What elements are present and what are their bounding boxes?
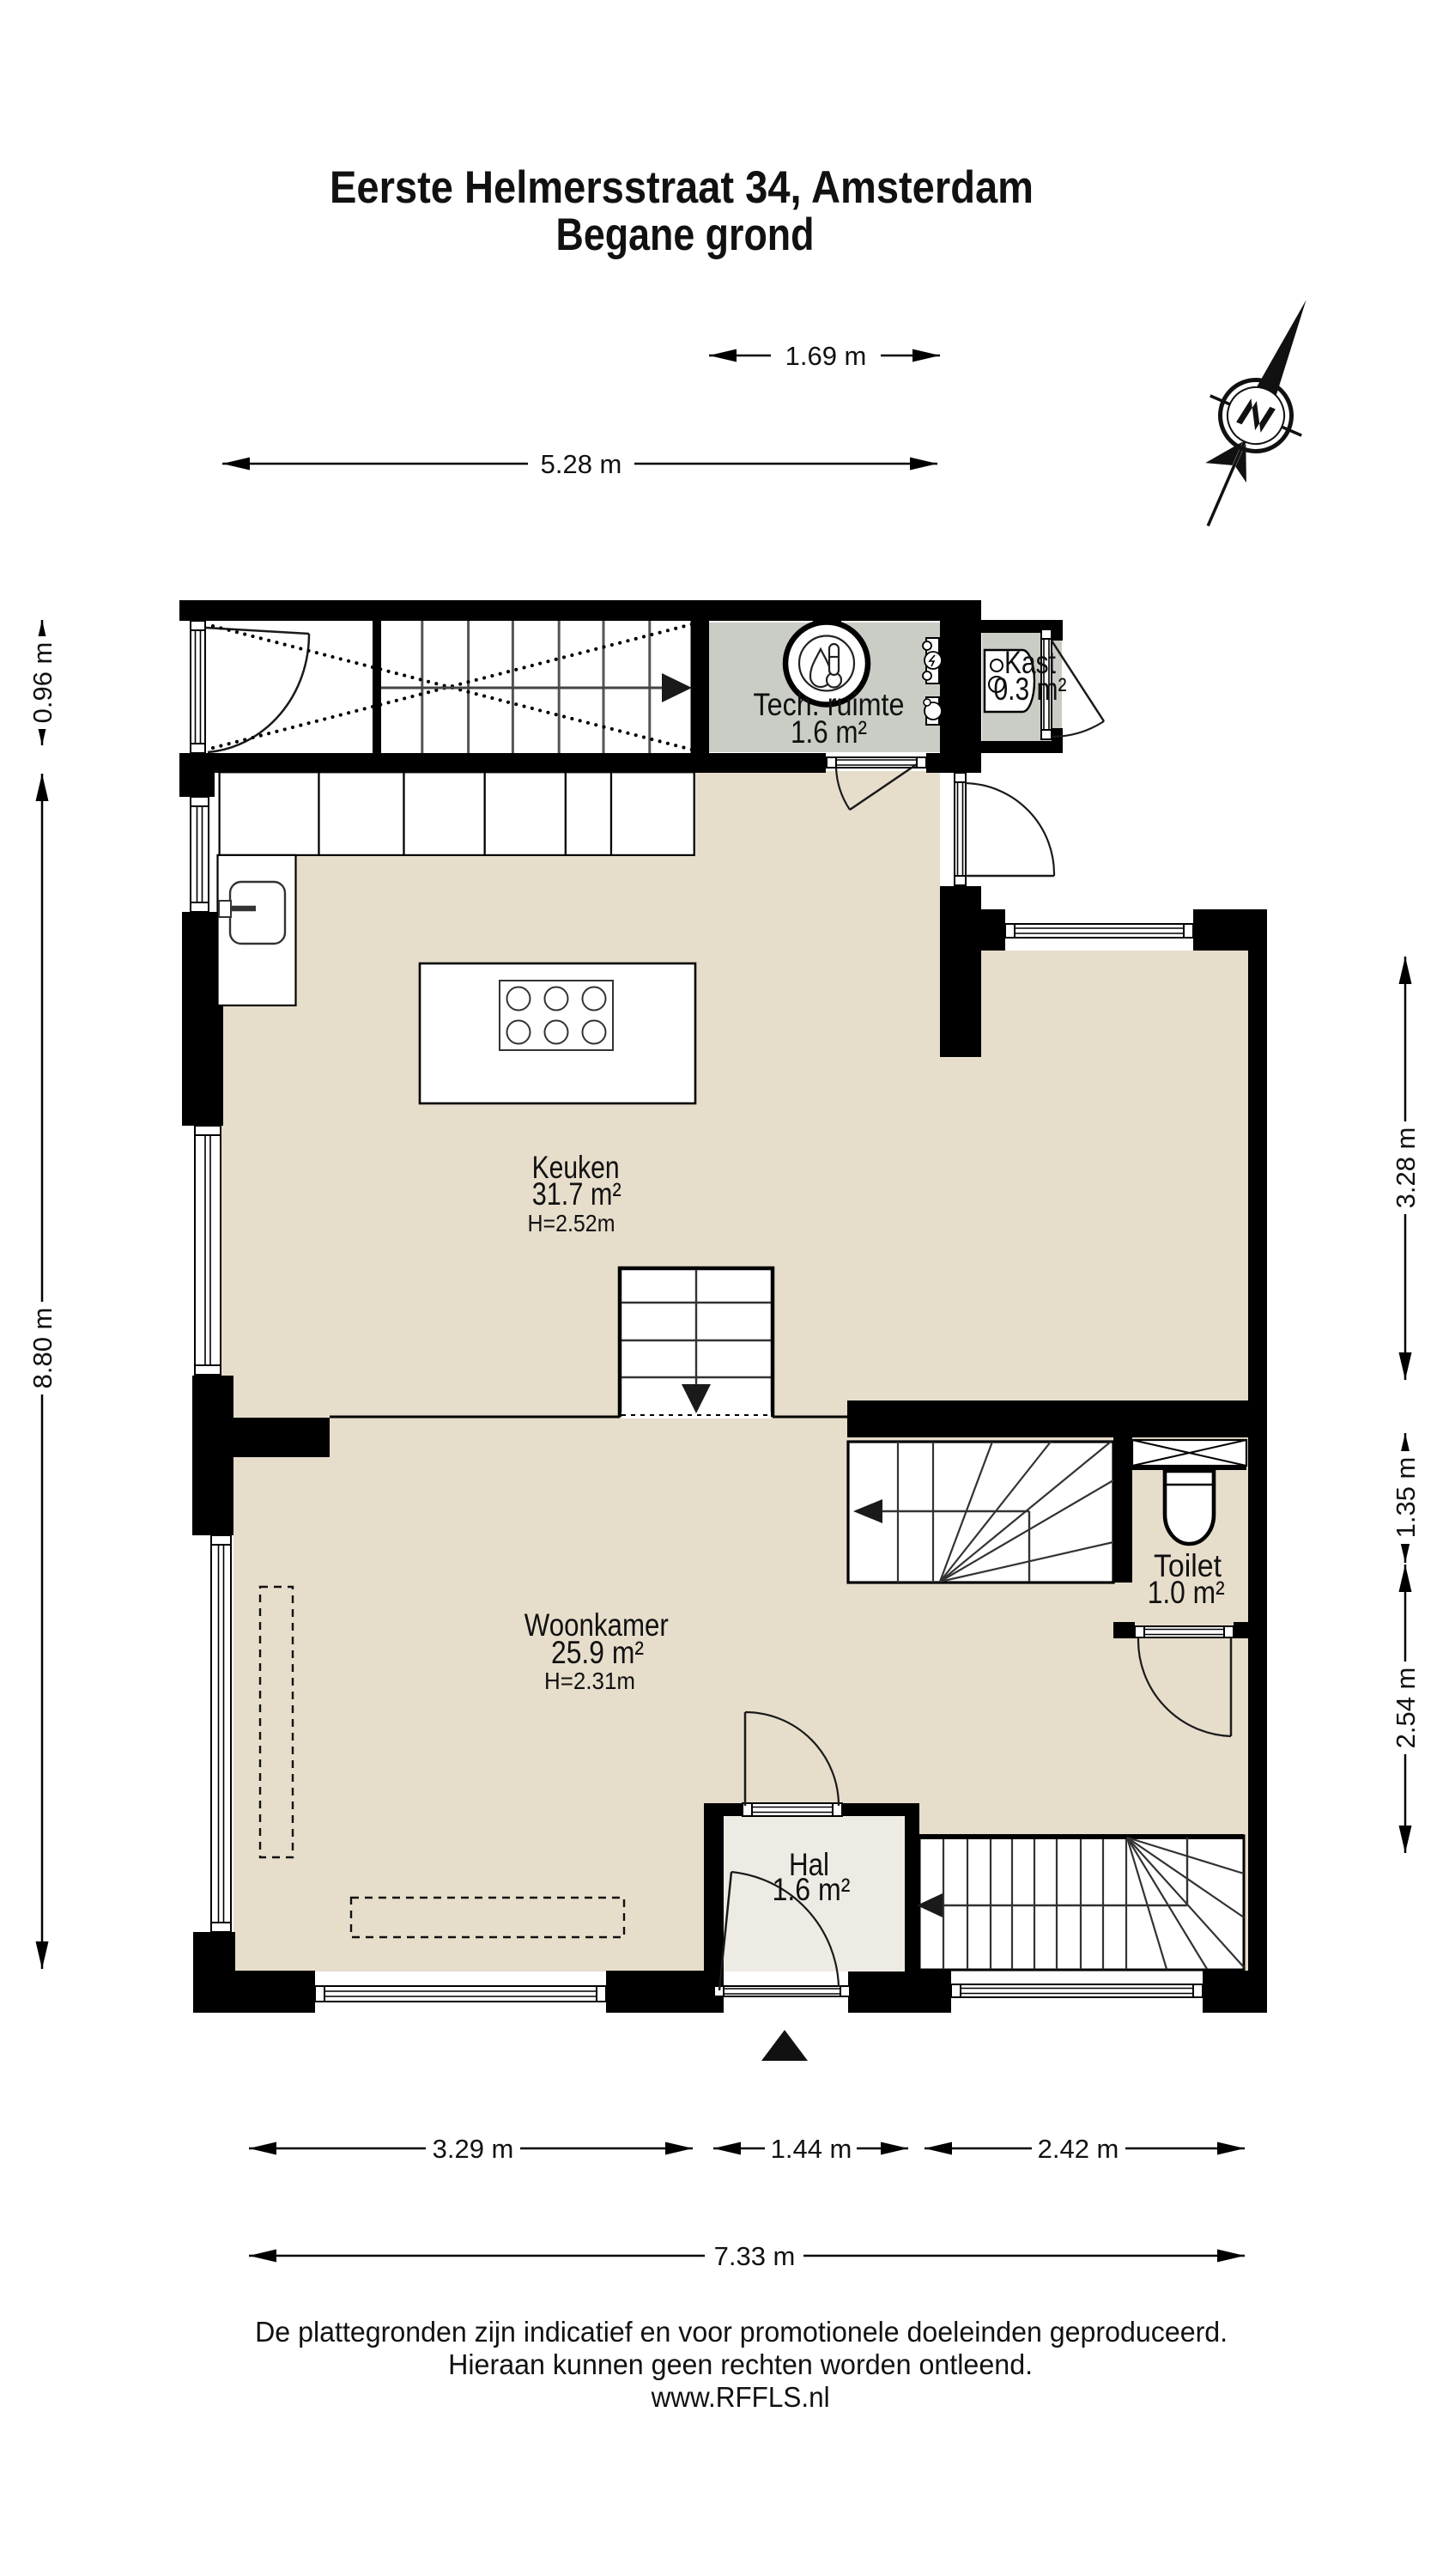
svg-text:Begane grond: Begane grond [556,210,815,260]
svg-text:Hieraan kunnen geen rechten wo: Hieraan kunnen geen rechten worden ontle… [448,2348,1033,2380]
svg-text:1.44 m: 1.44 m [771,2134,852,2164]
svg-text:1.6 m²: 1.6 m² [791,714,867,750]
svg-text:De plattegronden zijn indicati: De plattegronden zijn indicatief en voor… [255,2316,1228,2348]
svg-text:0.3 m²: 0.3 m² [994,671,1067,707]
svg-text:5.28 m: 5.28 m [541,449,622,479]
svg-text:8.80 m: 8.80 m [27,1308,58,1389]
svg-text:2.54 m: 2.54 m [1391,1668,1421,1749]
svg-text:25.9 m²: 25.9 m² [551,1635,644,1670]
svg-text:H=2.52m: H=2.52m [528,1210,615,1236]
svg-text:1.0 m²: 1.0 m² [1148,1575,1225,1610]
svg-text:H=2.31m: H=2.31m [544,1668,635,1694]
svg-text:2.42 m: 2.42 m [1038,2134,1119,2164]
svg-text:1.6 m²: 1.6 m² [773,1872,851,1907]
svg-text:7.33 m: 7.33 m [714,2241,796,2271]
svg-text:3.29 m: 3.29 m [433,2134,514,2164]
svg-text:31.7 m²: 31.7 m² [532,1176,621,1212]
svg-text:1.35 m: 1.35 m [1391,1457,1421,1539]
svg-text:3.28 m: 3.28 m [1391,1127,1421,1209]
svg-text:Eerste Helmersstraat 34, Amste: Eerste Helmersstraat 34, Amsterdam [330,162,1034,213]
svg-text:www.RFFLS.nl: www.RFFLS.nl [651,2381,830,2413]
svg-text:0.96 m: 0.96 m [27,642,58,724]
svg-text:1.69 m: 1.69 m [785,341,867,371]
